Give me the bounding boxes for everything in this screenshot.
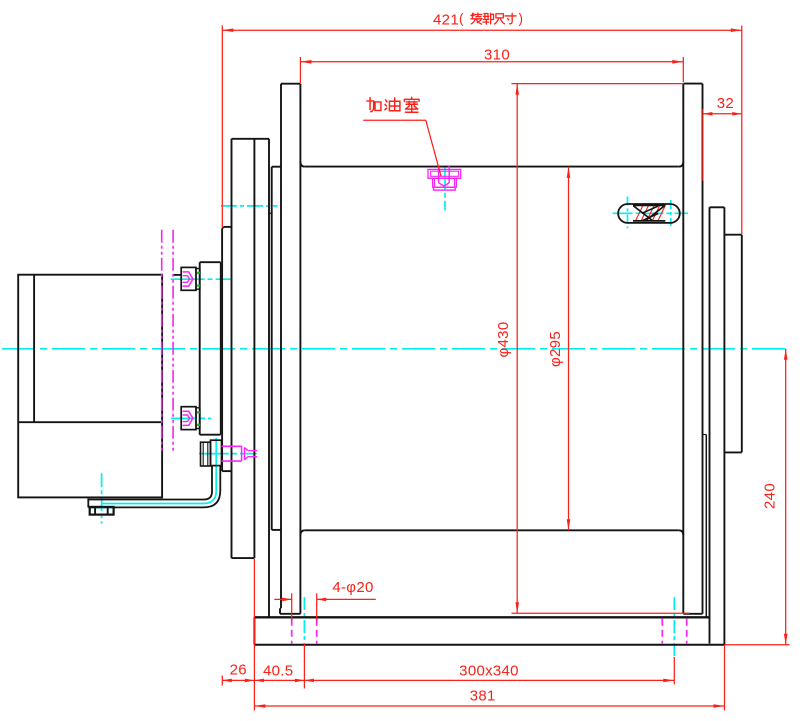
svg-text:(: ( — [459, 11, 464, 26]
svg-text:32: 32 — [717, 95, 734, 112]
svg-text:4-φ20: 4-φ20 — [332, 579, 373, 596]
svg-text:φ430: φ430 — [495, 322, 512, 358]
svg-text:40.5: 40.5 — [263, 663, 293, 680]
svg-text:240: 240 — [762, 483, 779, 509]
svg-text:381: 381 — [470, 688, 496, 705]
svg-text:310: 310 — [484, 47, 510, 64]
svg-text:421: 421 — [433, 11, 459, 28]
svg-text:φ295: φ295 — [547, 331, 564, 367]
svg-text:300x340: 300x340 — [459, 662, 519, 679]
svg-text:): ) — [519, 11, 524, 26]
svg-text:26: 26 — [230, 662, 247, 679]
